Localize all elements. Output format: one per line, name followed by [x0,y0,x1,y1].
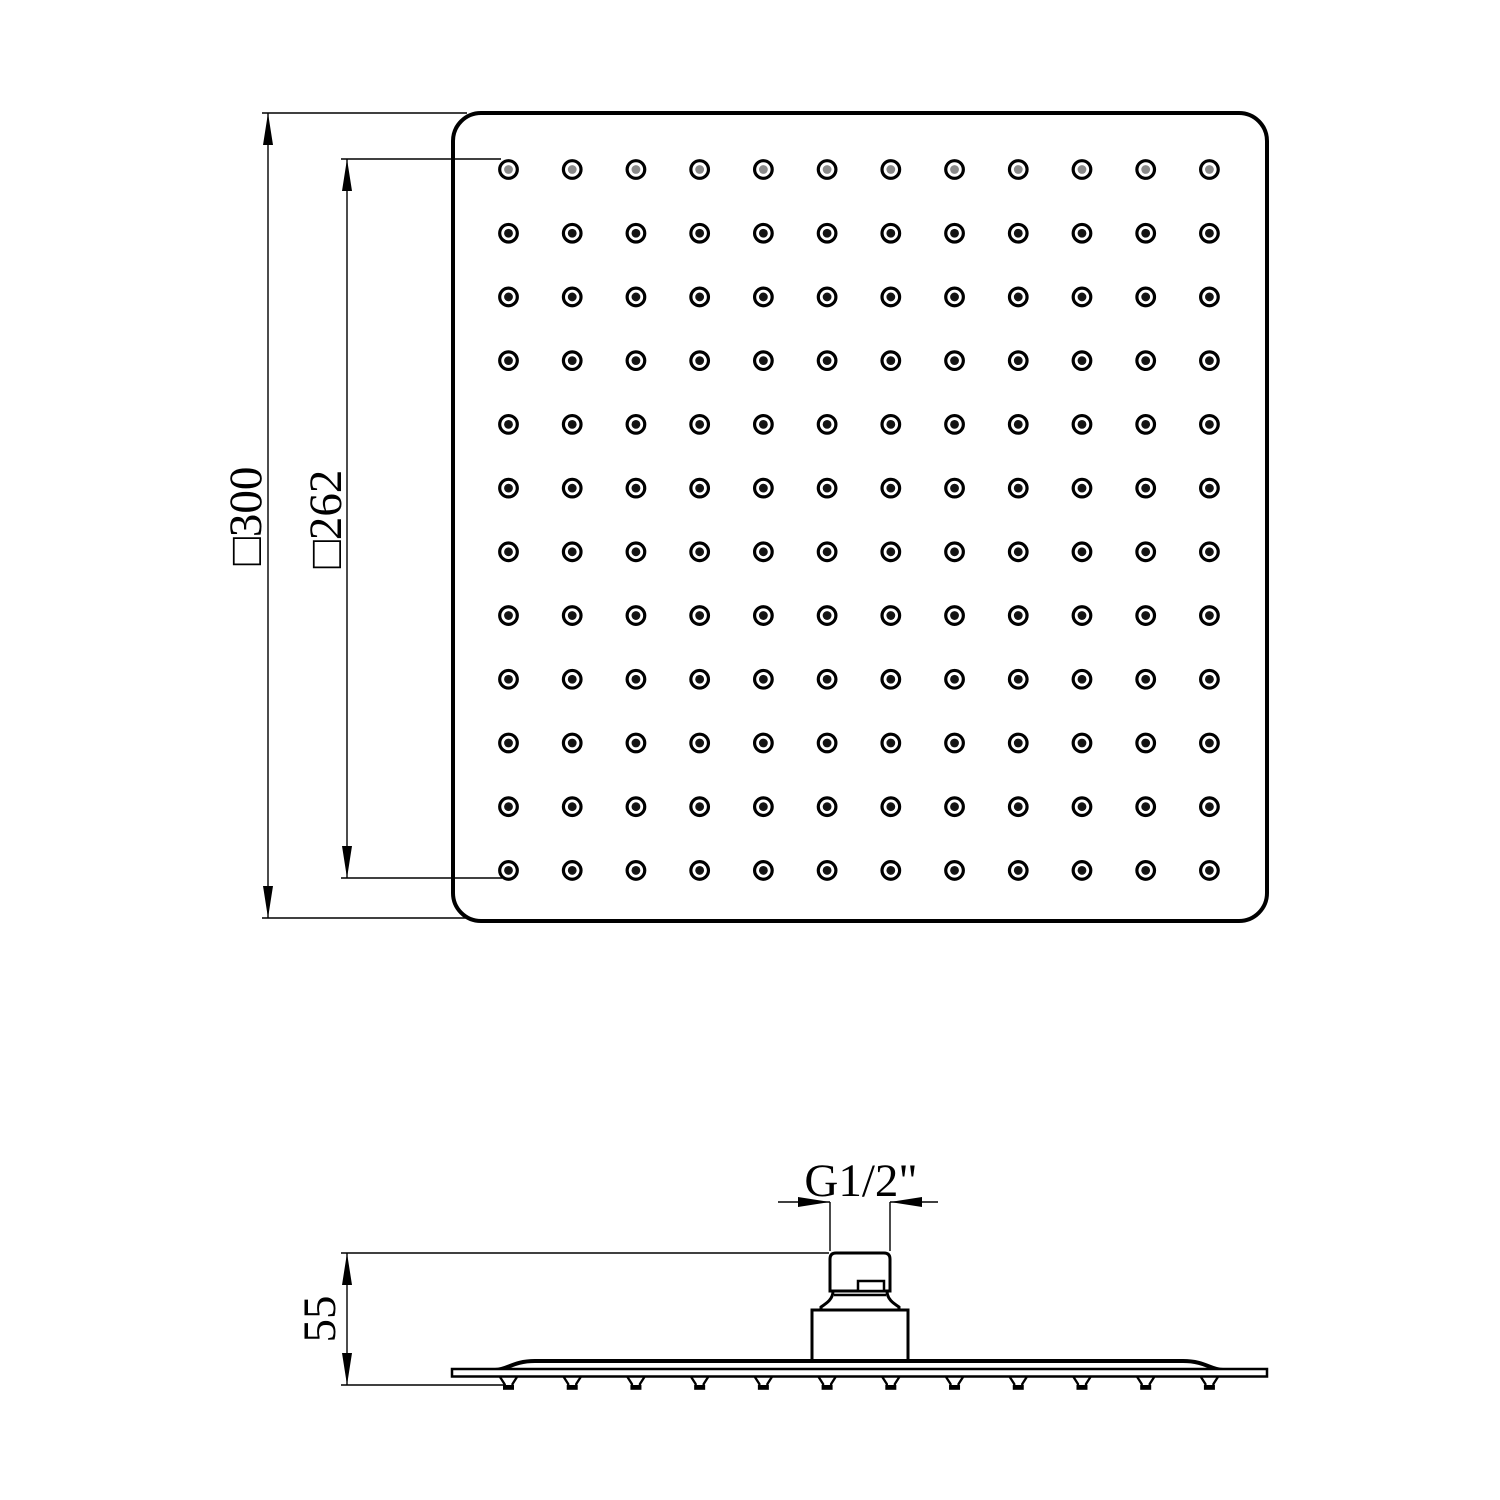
nozzle-dot [695,420,704,429]
nozzle-dot [695,611,704,620]
nozzle-dot [1014,739,1023,748]
nozzle-dot [632,547,641,556]
spray-tooth-tip [758,1385,769,1390]
spray-tooth-tip [567,1385,578,1390]
nozzle-dot [1014,547,1023,556]
nozzle-dot [1141,356,1150,365]
nozzle-dot [886,866,895,875]
nozzle-dot [695,675,704,684]
arrowhead-up-icon [342,159,352,191]
nozzle-dot [1078,547,1087,556]
nozzle-dot [823,739,832,748]
nozzle-dot [1014,675,1023,684]
nozzle-dot [568,484,577,493]
nozzle-dot [568,420,577,429]
nozzle-dot [1078,293,1087,302]
nozzle-dot [1078,611,1087,620]
technical-drawing-svg: □300 □262 [0,0,1500,1500]
nozzle-dot [1078,229,1087,238]
nozzle-dot [1014,802,1023,811]
nozzle-dot [1141,675,1150,684]
nozzle-dot [568,739,577,748]
nozzle-dot [1014,229,1023,238]
nozzle-dot [504,229,513,238]
nozzle-dot [823,356,832,365]
nozzle-dot [1141,547,1150,556]
nozzle-dot [759,484,768,493]
nozzle-dot [632,611,641,620]
nozzle-dot [886,547,895,556]
nozzle-dot [823,420,832,429]
nozzle-dot [886,293,895,302]
nozzle-dot [886,165,895,174]
nozzle-dot [950,739,959,748]
nozzle-dot [759,165,768,174]
mounting-block [812,1310,908,1361]
nozzle-dot [950,420,959,429]
nozzle-dot [823,165,832,174]
nozzle-dot [886,356,895,365]
arrowhead-down-icon [342,846,352,878]
spray-tooth-tip [1204,1385,1215,1390]
nozzle-dot [1205,547,1214,556]
dimension-label-outer: □300 [220,467,272,566]
nozzle-dot [1014,611,1023,620]
nozzle-dot [1014,484,1023,493]
nozzle-dot [568,229,577,238]
nozzle-dot [695,739,704,748]
nozzle-dot [568,547,577,556]
nozzle-dot [1078,165,1087,174]
nozzle-dot [1078,484,1087,493]
nozzle-dot [823,675,832,684]
nozzle-dot [1014,866,1023,875]
nozzle-dot [823,802,832,811]
nozzle-dot [1078,802,1087,811]
nozzle-dot [1014,293,1023,302]
nozzle-dot [823,484,832,493]
nozzle-dot [950,866,959,875]
faceplate-strip [452,1369,1267,1377]
nozzle-dot [568,675,577,684]
teeth-row [500,1377,1218,1390]
spray-tooth-tip [503,1385,514,1390]
dimension-55: 55 [294,1253,829,1385]
nozzle-dot [950,293,959,302]
nozzle-dot [1078,675,1087,684]
nozzle-dot [632,675,641,684]
nozzle-dot [1078,356,1087,365]
spray-tooth-tip [694,1385,705,1390]
nozzle-dot [950,675,959,684]
dimension-label-height: 55 [294,1296,346,1343]
nozzle-dot [823,866,832,875]
nozzle-dot [568,611,577,620]
nozzle-dot [695,356,704,365]
nozzle-dot [1078,420,1087,429]
spray-tooth-tip [822,1385,833,1390]
nozzle-dot [1141,420,1150,429]
nozzle-dot [1078,739,1087,748]
nozzle-dot [1205,611,1214,620]
nozzle-dot [1205,675,1214,684]
nozzle-dot [695,484,704,493]
spray-tooth-tip [1076,1385,1087,1390]
nozzle-dot [950,802,959,811]
nozzle-dot [695,229,704,238]
nozzle-dot [950,484,959,493]
nozzle-dot [504,484,513,493]
nozzle-dot [759,675,768,684]
nozzle-dot [695,547,704,556]
nozzle-dot [950,547,959,556]
nozzle-dot [504,165,513,174]
nozzle-dot [504,356,513,365]
nozzle-dot [1078,866,1087,875]
nozzle-dot [1141,802,1150,811]
nozzle-dot [759,739,768,748]
nozzle-dot [759,611,768,620]
nozzle-dot [759,229,768,238]
nozzle-dot [1205,356,1214,365]
nozzle-dot [950,356,959,365]
arrowhead-down-icon [263,886,273,918]
nozzle-dot [759,802,768,811]
nozzle-dot [1141,229,1150,238]
nozzle-dot [632,866,641,875]
arrowhead-up-icon [342,1253,352,1285]
nozzle-dot [823,611,832,620]
nozzle-dot [504,866,513,875]
nozzle-dot [695,866,704,875]
dimension-thread: G1/2" [778,1155,938,1251]
nozzle-dot [1205,420,1214,429]
nozzle-dot [632,356,641,365]
nozzle-dot [886,229,895,238]
nozzle-dot [1205,229,1214,238]
nozzle-dot [759,866,768,875]
nozzle-dot [1205,293,1214,302]
nozzle-dot [1205,802,1214,811]
arrowhead-up-icon [263,113,273,145]
nozzle-dot [568,293,577,302]
nozzle-dot [504,739,513,748]
nozzle-dot [886,802,895,811]
top-view: □300 □262 [220,113,1267,921]
spray-tooth-tip [630,1385,641,1390]
nozzle-dot [632,420,641,429]
thread-notch [858,1281,884,1291]
spray-tooth-tip [1013,1385,1024,1390]
spray-tooth-tip [885,1385,896,1390]
nozzle-dot [568,356,577,365]
nozzle-dot [759,293,768,302]
nozzle-dot [759,547,768,556]
nozzle-dot [1141,611,1150,620]
nozzle-dot [1014,165,1023,174]
nozzle-dot [695,802,704,811]
nozzle-dot [759,420,768,429]
nozzle-dot [504,293,513,302]
nozzle-dot [1141,866,1150,875]
nozzle-dot [823,293,832,302]
nozzle-dot [886,420,895,429]
nozzle-dot [1205,165,1214,174]
side-view: 55 G1/2" [294,1155,1267,1390]
nozzle-dot [504,675,513,684]
nozzle-dot [632,293,641,302]
nozzle-dot [1205,739,1214,748]
nozzle-dot [504,802,513,811]
spray-tooth-tip [1140,1385,1151,1390]
spray-tooth-tip [949,1385,960,1390]
nozzle-dot [632,165,641,174]
nozzle-dot [823,229,832,238]
nozzle-dot [504,420,513,429]
nozzle-dot [504,547,513,556]
nozzle-dot [1141,165,1150,174]
nozzle-dot [568,802,577,811]
nozzle-dot [886,611,895,620]
drawing-canvas: □300 □262 [0,0,1500,1500]
nozzle-dot [950,229,959,238]
nozzle-dot [1141,484,1150,493]
nozzle-dot [1141,293,1150,302]
nozzle-dot [632,739,641,748]
nozzle-dot [632,484,641,493]
dimension-label-inner: □262 [300,470,352,569]
dimension-label-thread: G1/2" [804,1155,917,1207]
nozzle-dot [695,293,704,302]
nozzle-dot [759,356,768,365]
nozzle-dot [1205,484,1214,493]
nozzle-dot [568,866,577,875]
arrowhead-down-icon [342,1353,352,1385]
nozzle-dot [568,165,577,174]
nozzle-dot [886,675,895,684]
nozzle-dot [1205,866,1214,875]
nozzle-dot [504,611,513,620]
nozzle-dot [1014,420,1023,429]
nozzle-dot [886,739,895,748]
nozzle-dot [823,547,832,556]
nozzle-dot [950,611,959,620]
nozzle-dot [1141,739,1150,748]
nozzle-dot [695,165,704,174]
nozzle-dot [632,229,641,238]
nozzle-dot [950,165,959,174]
nozzle-dot [632,802,641,811]
nozzle-dot [886,484,895,493]
nozzle-dot [1014,356,1023,365]
